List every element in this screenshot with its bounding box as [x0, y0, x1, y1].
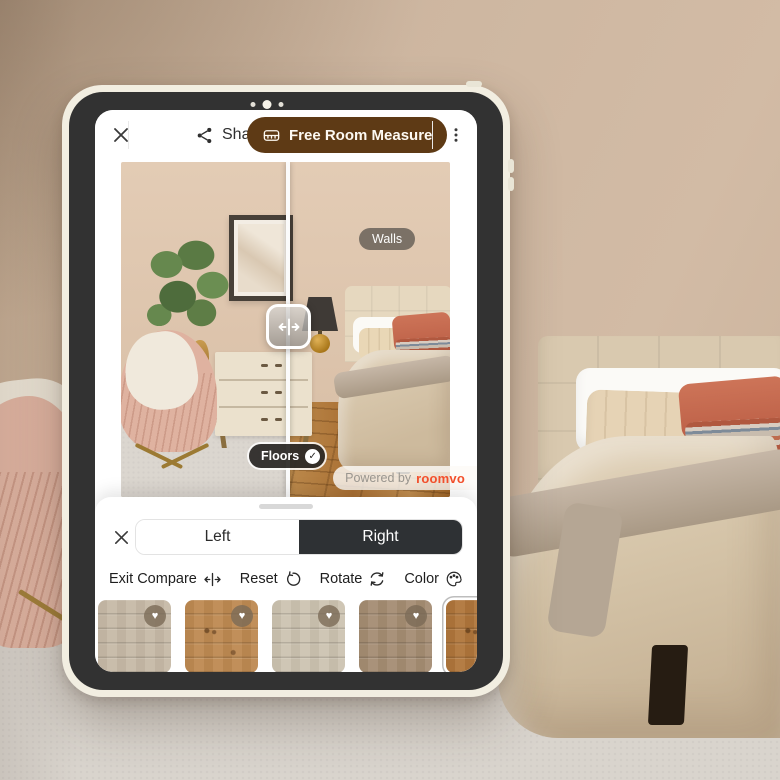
close-button[interactable] [103, 110, 139, 160]
compare-arrows-icon [203, 570, 222, 589]
floors-tag[interactable]: Floors ✓ [249, 444, 325, 468]
segment-left[interactable]: Left [136, 520, 299, 554]
room-lamp-base [310, 334, 330, 353]
exit-compare-button[interactable]: Exit Compare [105, 570, 226, 589]
favorite-button[interactable]: ♥ [318, 605, 340, 627]
app-top-bar: Share Free Room Measure [95, 110, 477, 160]
divider [128, 121, 129, 149]
room-bed [336, 286, 450, 472]
favorite-button[interactable]: ♥ [144, 605, 166, 627]
side-segmented-control: Left Right [135, 519, 463, 555]
compare-slider-handle[interactable] [266, 304, 311, 349]
divider [432, 121, 433, 149]
toolbar: Exit Compare Reset Rotate Color [105, 567, 467, 591]
exit-compare-label: Exit Compare [109, 571, 197, 587]
favorite-button[interactable]: ♥ [231, 605, 253, 627]
walls-tag[interactable]: Walls [359, 228, 415, 250]
color-label: Color [404, 571, 439, 587]
reset-button[interactable]: Reset [236, 570, 306, 588]
roomvo-logo: roomvo [416, 471, 465, 486]
room-dresser [215, 352, 312, 436]
rotate-icon [368, 570, 386, 588]
tablet-volume-down-button [508, 177, 514, 191]
flooring-swatch-3[interactable]: ♥ [272, 600, 345, 672]
menu-button[interactable] [439, 110, 473, 160]
check-icon: ✓ [305, 449, 320, 464]
reset-label: Reset [240, 571, 278, 587]
free-room-measure-button[interactable]: Free Room Measure [247, 117, 447, 153]
tablet-device: Share Free Room Measure [62, 85, 510, 697]
room-visualizer-image: Walls Floors ✓ [121, 162, 450, 497]
favorite-button[interactable]: ♥ [405, 605, 427, 627]
tape-measure-icon [262, 126, 281, 145]
tablet-power-button [466, 81, 482, 87]
flooring-swatch-2[interactable]: ♥ [185, 600, 258, 672]
flooring-swatch-4[interactable]: ♥ [359, 600, 432, 672]
room-wall-art [229, 215, 293, 301]
segment-right[interactable]: Right [299, 520, 462, 554]
room-plant [139, 230, 231, 345]
walls-tag-label: Walls [372, 232, 402, 246]
powered-by-label: Powered by [345, 471, 411, 485]
tablet-volume-up-button [508, 159, 514, 173]
free-room-measure-label: Free Room Measure [289, 127, 432, 144]
color-button[interactable]: Color [400, 570, 467, 588]
camera-icon [251, 98, 284, 110]
app-screen: Share Free Room Measure [95, 110, 477, 672]
flooring-swatch-1[interactable]: ♥ [98, 600, 171, 672]
share-icon [195, 126, 214, 145]
floors-tag-label: Floors [261, 449, 299, 463]
close-icon [112, 528, 131, 547]
heart-icon: ♥ [152, 610, 159, 622]
palette-icon [445, 570, 463, 588]
rotate-label: Rotate [320, 571, 363, 587]
heart-icon: ♥ [326, 610, 333, 622]
flooring-swatch-list: ♥ ♥ ♥ ♥ [98, 600, 477, 672]
flooring-swatch-5-selected[interactable] [446, 600, 477, 672]
kebab-menu-icon [447, 125, 465, 145]
undo-icon [284, 570, 302, 588]
bottom-sheet: Left Right Exit Compare Reset Rotate Col… [95, 497, 477, 672]
heart-icon: ♥ [413, 610, 420, 622]
rotate-button[interactable]: Rotate [316, 570, 391, 588]
heart-icon: ♥ [239, 610, 246, 622]
sheet-drag-handle[interactable] [259, 504, 313, 509]
sheet-close-button[interactable] [105, 521, 137, 553]
powered-by-watermark: Powered by roomvo [333, 466, 477, 490]
compare-arrows-icon [277, 315, 301, 339]
room-armchair [121, 330, 219, 462]
